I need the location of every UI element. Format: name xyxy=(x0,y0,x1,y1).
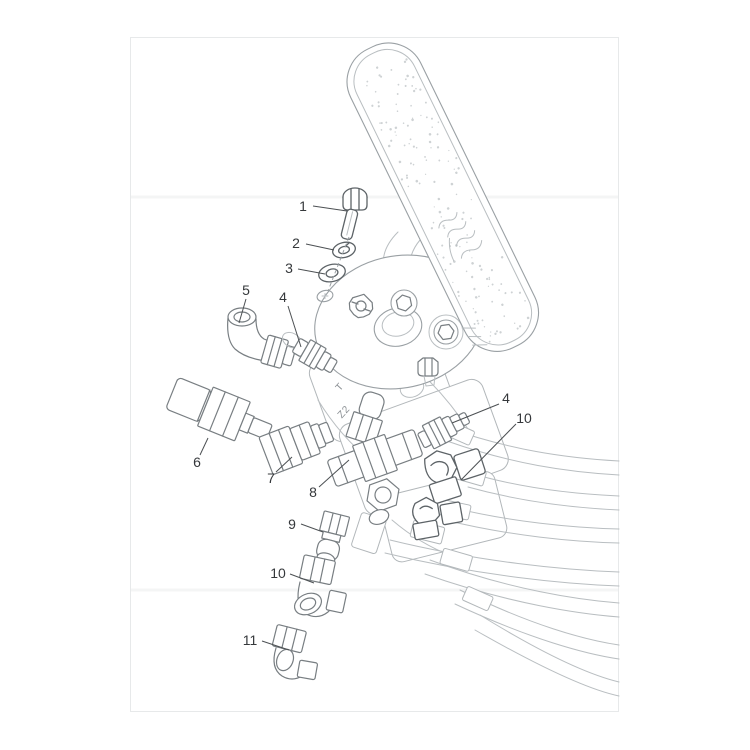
callout-leader-2 xyxy=(306,244,334,250)
part-5-elbow-fitting xyxy=(228,308,298,371)
part-10-elbow-left xyxy=(291,555,346,619)
part-7-union-fitting xyxy=(259,413,338,475)
callout-label-10: 10 xyxy=(516,410,532,426)
callout-leader-1 xyxy=(313,206,347,211)
exploded-diagram: TZ2 1235467891011410 xyxy=(0,0,750,750)
callout-label-10: 10 xyxy=(270,565,286,581)
part-1-bolt xyxy=(340,188,367,240)
callout-label-5: 5 xyxy=(242,282,250,298)
callout-label-9: 9 xyxy=(288,516,296,532)
scanned-parts-page: TZ2 1235467891011410 xyxy=(0,0,750,750)
callout-leader-6 xyxy=(200,438,208,455)
callout-label-7: 7 xyxy=(267,470,275,486)
callout-leader-4 xyxy=(288,306,301,347)
callout-label-2: 2 xyxy=(292,235,300,251)
mount-port-nut xyxy=(391,290,417,316)
callout-label-4: 4 xyxy=(279,289,287,305)
part-11-elbow xyxy=(272,624,318,679)
mount-port-nut xyxy=(429,315,463,349)
callout-label-3: 3 xyxy=(285,260,293,276)
callout-label-8: 8 xyxy=(309,484,317,500)
callout-label-4: 4 xyxy=(502,390,510,406)
callout-label-1: 1 xyxy=(299,198,307,214)
part-2-lock-washer xyxy=(331,240,357,260)
callout-label-6: 6 xyxy=(193,454,201,470)
callout-label-11: 11 xyxy=(243,632,258,648)
